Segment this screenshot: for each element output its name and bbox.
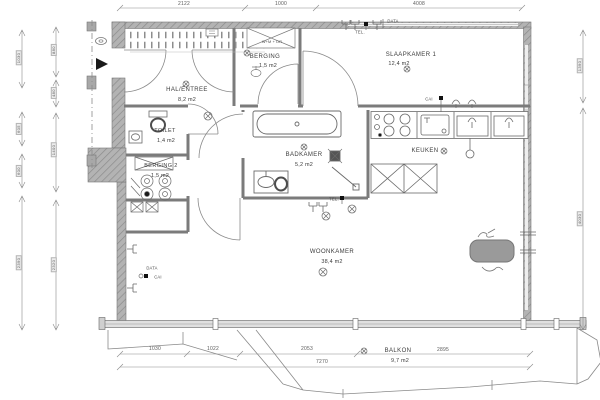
junction-box-icon xyxy=(206,29,218,36)
room-label-berging2: BERGING 2 xyxy=(144,163,178,169)
room-area-berging2: 1,5 m2 xyxy=(151,173,169,179)
dim-bottom-4: 2895 xyxy=(437,347,449,353)
toilet-icon xyxy=(275,178,287,191)
dim-top-3: 4008 xyxy=(413,1,425,7)
doorbell-icon xyxy=(96,38,107,45)
balcony-outline xyxy=(108,328,600,398)
tel-tag-livingroom: TEL. xyxy=(329,197,339,202)
room-area-balkon: 9,7 m2 xyxy=(391,358,409,364)
corner-sink-icon xyxy=(129,131,142,143)
room-area-toilet: 1,4 m2 xyxy=(157,138,175,144)
dim-left-inner-4: 2320 xyxy=(51,258,57,273)
dim-left-inner-2: 480 xyxy=(51,87,57,99)
coat-rack xyxy=(130,29,265,52)
data-tag-livingroom: DATA xyxy=(146,266,157,271)
dim-bottom-3: 2053 xyxy=(301,346,313,352)
shower-rail xyxy=(332,167,356,187)
window-lines xyxy=(348,23,531,310)
room-area-hal-entree: 8,2 m2 xyxy=(178,97,196,103)
dim-left-outer-2: 605 xyxy=(16,123,22,135)
entrance-door xyxy=(124,50,166,92)
room-label-badkamer: BADKAMER xyxy=(286,152,323,158)
glass-facade xyxy=(99,318,586,330)
room-area-badkamer: 5,2 m2 xyxy=(295,162,313,168)
tel-tag-bedroom: TEL. xyxy=(355,30,365,35)
room-label-toilet: TOILET xyxy=(154,128,176,134)
dim-right-1: 1390 xyxy=(577,59,583,74)
dim-left-inner-1: 880 xyxy=(51,44,57,56)
data-tag-bedroom: DATA xyxy=(387,19,398,24)
berging-door xyxy=(258,64,298,104)
room-area-slaapkamer1: 12,4 m2 xyxy=(388,61,409,67)
toilet-door xyxy=(188,104,218,134)
floor-drain-icon xyxy=(251,70,261,77)
dim-left-inner-3: 1400 xyxy=(51,143,57,158)
washer-dryer-tag: W+M + DR xyxy=(262,40,282,44)
utility-symbols xyxy=(127,19,536,354)
room-label-balkon: BALKON xyxy=(385,348,412,354)
livingroom-door xyxy=(198,198,240,240)
dim-top-2: 1000 xyxy=(275,1,287,7)
cai-tag-livingroom: CAI xyxy=(154,275,162,280)
sketch-markup-blob xyxy=(470,229,514,271)
room-label-woonkamer: WOONKAMER xyxy=(310,249,354,255)
room-label-keuken: KEUKEN xyxy=(411,148,438,154)
room-label-hal-entree: HAL/ENTREE xyxy=(166,87,208,93)
dim-bottom-1: 1030 xyxy=(149,346,161,352)
bathtub-icon xyxy=(253,111,341,137)
entrance-arrow-icon xyxy=(96,58,108,70)
room-area-woonkamer: 38,4 m2 xyxy=(321,259,342,265)
dim-left-outer-3: 600 xyxy=(16,165,22,177)
dimension-lines xyxy=(19,5,586,370)
dim-top-1: 2122 xyxy=(178,1,190,7)
cai-tag-kitchen: CAI xyxy=(425,97,433,102)
hall-door xyxy=(192,50,234,92)
room-label-berging: BERGING xyxy=(250,54,280,60)
kitchen-cabinets xyxy=(371,164,437,193)
bedroom-door xyxy=(303,51,358,106)
room-label-slaapkamer1: SLAAPKAMER 1 xyxy=(386,52,437,58)
dim-right-2: 4030 xyxy=(577,212,583,227)
dim-bottom-total: 7270 xyxy=(316,359,328,365)
room-area-berging: 1,5 m2 xyxy=(259,63,277,69)
floor-plan-drawing xyxy=(0,0,600,400)
kitchen-counter xyxy=(371,112,528,194)
floor-plan-page: HAL/ENTREE 8,2 m2 BERGING 1,5 m2 SLAAPKA… xyxy=(0,0,600,400)
bathroom-door xyxy=(199,114,243,158)
ceiling-point-icon xyxy=(183,50,447,354)
dim-left-outer-1: 1030 xyxy=(16,51,22,66)
entrance-markers xyxy=(96,38,109,71)
dim-left-outer-4: 2390 xyxy=(16,256,22,271)
dim-bottom-2: 1022 xyxy=(207,346,219,352)
